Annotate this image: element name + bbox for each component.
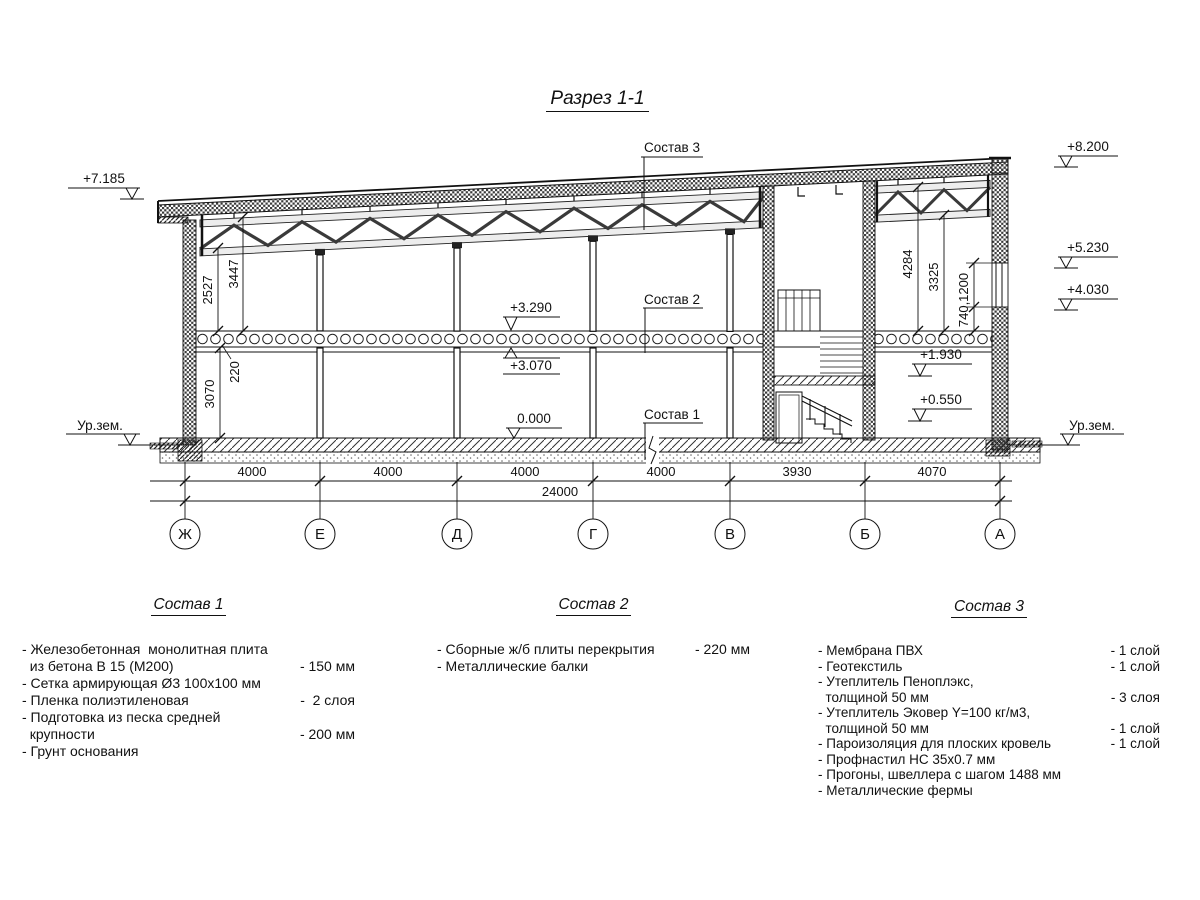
list-item: - Профнастил НС 35х0.7 мм bbox=[818, 752, 1160, 768]
list-item: - Металлические балки bbox=[437, 658, 750, 675]
list-item: - Железобетонная монолитная плита bbox=[22, 641, 355, 658]
stairwell-walls bbox=[763, 181, 875, 440]
axis-d: Д bbox=[452, 526, 462, 543]
dimension-rows: 4000 4000 4000 4000 3930 4070 24000 bbox=[150, 462, 1012, 519]
stairwell bbox=[774, 290, 875, 443]
right-wall-window bbox=[992, 263, 1008, 307]
elev-slab-top: +3.290 bbox=[503, 300, 560, 330]
svg-text:+5.230: +5.230 bbox=[1067, 240, 1109, 255]
elev-left-roof: +7.185 bbox=[68, 171, 144, 199]
dim-span-2: 4000 bbox=[374, 464, 403, 479]
svg-text:+7.185: +7.185 bbox=[83, 171, 125, 186]
ground-slab bbox=[150, 436, 1042, 464]
list-item: - Металлические фермы bbox=[818, 783, 1160, 799]
dim-2527: 2527 bbox=[200, 276, 215, 305]
list-item: толщиной 50 мм- 1 слой bbox=[818, 721, 1160, 737]
axis-v: В bbox=[725, 526, 735, 543]
axis-zh: Ж bbox=[178, 526, 192, 543]
svg-text:Ур.зем.: Ур.зем. bbox=[1069, 418, 1115, 433]
composition-2-title: Состав 2 bbox=[437, 596, 750, 614]
svg-text:0.000: 0.000 bbox=[517, 411, 551, 426]
composition-3-title: Состав 3 bbox=[818, 598, 1160, 616]
composition-1: Состав 1 - Железобетонная монолитная пли… bbox=[22, 596, 355, 760]
section-drawing: Состав 3 Состав 2 Состав 1 +7.185 Ур.зем… bbox=[0, 0, 1200, 580]
dim-3325: 3325 bbox=[926, 263, 941, 292]
dim-span-6: 4070 bbox=[918, 464, 947, 479]
truss-right bbox=[875, 176, 990, 223]
dim-220: 220 bbox=[227, 361, 242, 383]
list-item: - Грунт основания bbox=[22, 743, 355, 760]
svg-text:+3.070: +3.070 bbox=[510, 358, 552, 373]
list-item: - Утеплитель Пеноплэкс, bbox=[818, 674, 1160, 690]
callout-sostav3: Состав 3 bbox=[644, 140, 700, 155]
composition-1-title: Состав 1 bbox=[22, 596, 355, 614]
axis-g: Г bbox=[589, 526, 597, 543]
elev-right-top: +8.200 bbox=[1054, 139, 1118, 167]
svg-text:+4.030: +4.030 bbox=[1067, 282, 1109, 297]
composition-2: Состав 2 - Сборные ж/б плиты перекрытия-… bbox=[437, 596, 750, 675]
dim-3447: 3447 bbox=[226, 260, 241, 289]
svg-text:+3.290: +3.290 bbox=[510, 300, 552, 315]
list-item: - Пленка полиэтиленовая- 2 слоя bbox=[22, 692, 355, 709]
callout-sostav1: Состав 1 bbox=[644, 407, 700, 422]
right-wall bbox=[992, 173, 1008, 450]
list-item: крупности- 200 мм bbox=[22, 726, 355, 743]
dim-total: 24000 bbox=[542, 484, 578, 499]
elev-zero: 0.000 bbox=[506, 411, 562, 438]
callout-sostav2: Состав 2 bbox=[644, 292, 700, 307]
axis-bubbles: Ж Е Д Г В Б А bbox=[170, 519, 1015, 549]
list-item: толщиной 50 мм- 3 слоя bbox=[818, 690, 1160, 706]
svg-text:+0.550: +0.550 bbox=[920, 392, 962, 407]
list-item: - Мембрана ПВХ- 1 слой bbox=[818, 643, 1160, 659]
drawing-sheet: { "title": "Разрез 1-1", "callouts": { "… bbox=[0, 0, 1200, 900]
dim-740-1200: 740,1200 bbox=[956, 273, 971, 327]
left-wall bbox=[183, 220, 196, 445]
dim-3070: 3070 bbox=[202, 380, 217, 409]
elev-room-upper: +1.930 bbox=[908, 347, 972, 376]
elev-right-upper: +5.230 bbox=[1054, 240, 1118, 268]
list-item: - Прогоны, швеллера с шагом 1488 мм bbox=[818, 767, 1160, 783]
list-item: - Пароизоляция для плоских кровель- 1 сл… bbox=[818, 736, 1160, 752]
elev-room-lower: +0.550 bbox=[908, 392, 972, 421]
dim-span-5: 3930 bbox=[783, 464, 812, 479]
list-item: - Утеплитель Эковер Y=100 кг/м3, bbox=[818, 705, 1160, 721]
list-item: - Сетка армирующая Ø3 100х100 мм bbox=[22, 675, 355, 692]
dim-4284: 4284 bbox=[900, 250, 915, 279]
dim-span-3: 4000 bbox=[511, 464, 540, 479]
axis-e: Е bbox=[315, 526, 325, 543]
axis-a: А bbox=[995, 526, 1005, 543]
list-item: из бетона В 15 (М200)- 150 мм bbox=[22, 658, 355, 675]
list-item: - Сборные ж/б плиты перекрытия- 220 мм bbox=[437, 641, 750, 658]
dim-span-1: 4000 bbox=[238, 464, 267, 479]
elev-right-lower: +4.030 bbox=[1054, 282, 1118, 310]
composition-3: Состав 3 - Мембрана ПВХ- 1 слой - Геотек… bbox=[818, 598, 1160, 798]
list-item: - Подготовка из песка средней bbox=[22, 709, 355, 726]
svg-text:+1.930: +1.930 bbox=[920, 347, 962, 362]
svg-text:+8.200: +8.200 bbox=[1067, 139, 1109, 154]
list-item: - Геотекстиль- 1 слой bbox=[818, 659, 1160, 675]
dim-span-4: 4000 bbox=[647, 464, 676, 479]
axis-b: Б bbox=[860, 526, 870, 543]
svg-text:Ур.зем.: Ур.зем. bbox=[77, 418, 123, 433]
